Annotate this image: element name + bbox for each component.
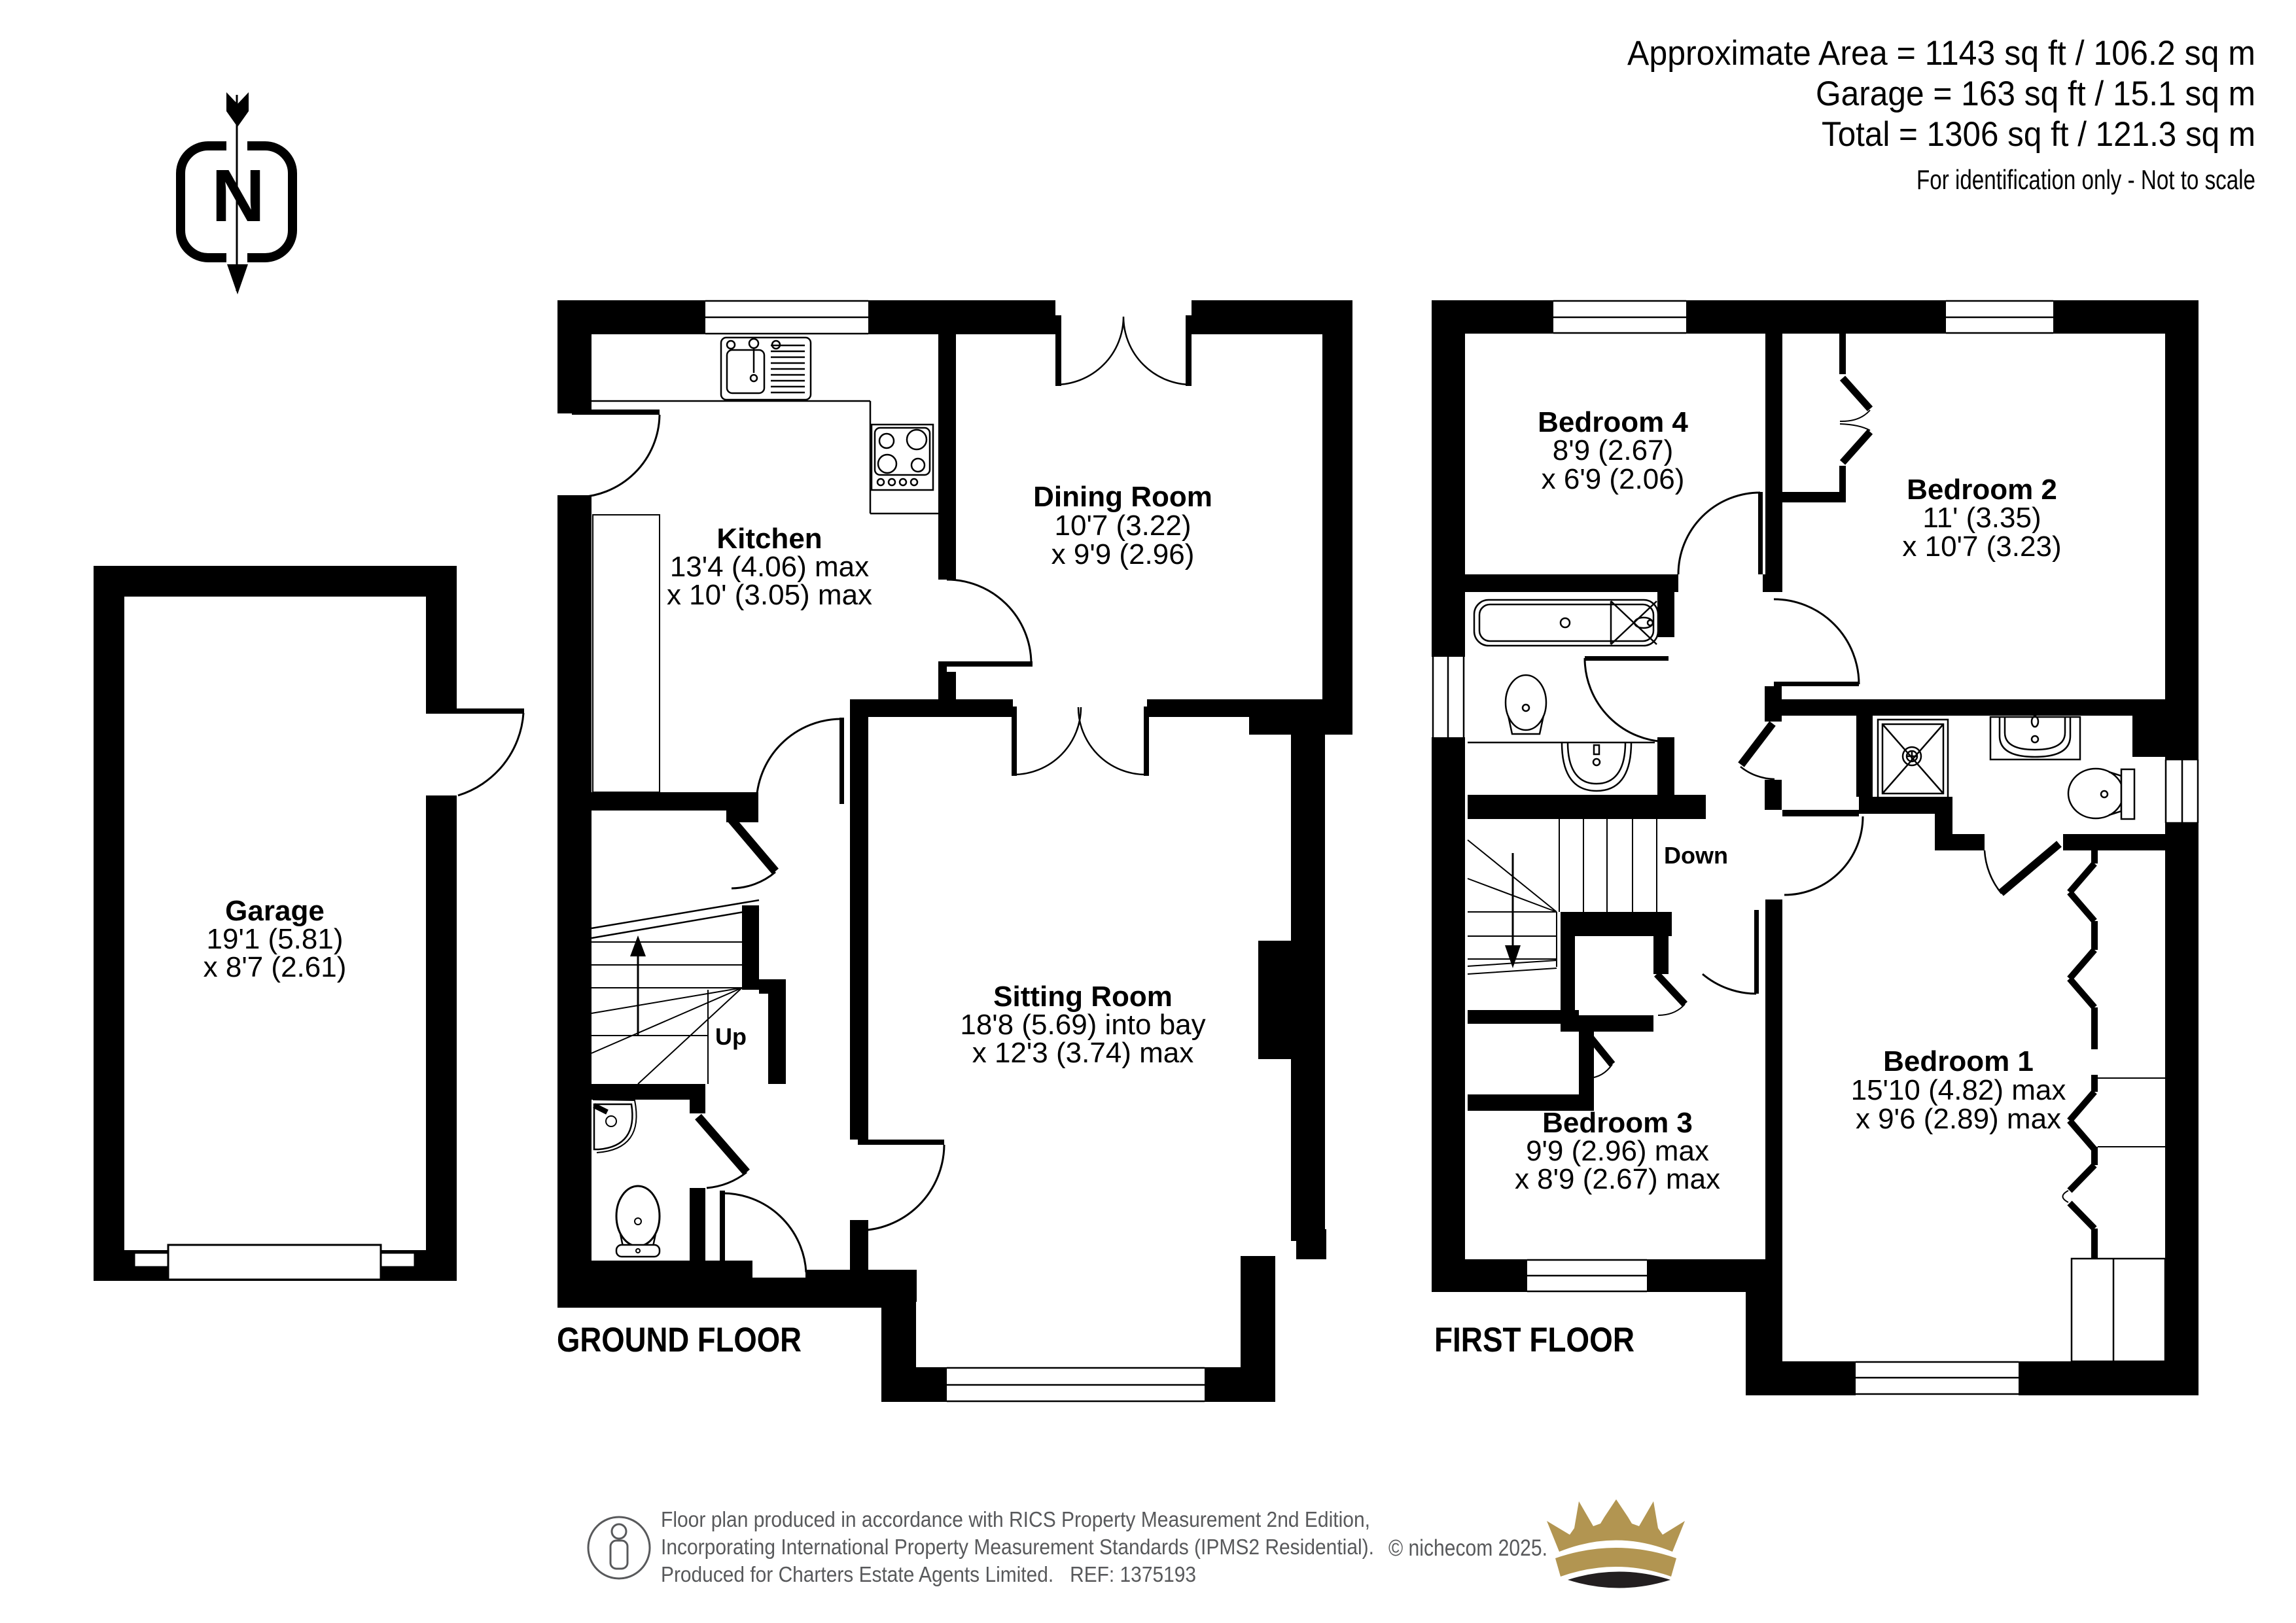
svg-text:Produced for Charters Estate A: Produced for Charters Estate Agents Limi… [661,1562,1196,1586]
svg-text:Bedroom 4: Bedroom 4 [1538,406,1688,438]
svg-text:GROUND FLOOR: GROUND FLOOR [557,1321,802,1359]
svg-text:© nichecom 2025.: © nichecom 2025. [1388,1535,1547,1561]
svg-text:Floor plan produced in accorda: Floor plan produced in accordance with R… [661,1507,1370,1531]
svg-text:x 9'9 (2.96): x 9'9 (2.96) [1051,538,1195,570]
svg-text:Down: Down [1664,842,1728,869]
svg-text:Approximate Area = 1143 sq ft: Approximate Area = 1143 sq ft / 106.2 sq… [1627,34,2255,73]
svg-text:11' (3.35): 11' (3.35) [1922,502,2041,534]
svg-text:x 12'3 (3.74) max: x 12'3 (3.74) max [972,1037,1194,1069]
svg-text:FIRST FLOOR: FIRST FLOOR [1434,1321,1634,1359]
svg-text:For identification only - Not: For identification only - Not to scale [1916,164,2255,195]
svg-text:15'10 (4.82) max: 15'10 (4.82) max [1851,1074,2066,1106]
svg-text:Dining Room: Dining Room [1033,481,1212,513]
svg-text:Up: Up [715,1023,747,1050]
svg-text:Total = 1306 sq ft / 121.3 sq: Total = 1306 sq ft / 121.3 sq m [1822,115,2255,154]
svg-text:x 8'9 (2.67) max: x 8'9 (2.67) max [1515,1163,1720,1195]
svg-text:Bedroom 1: Bedroom 1 [1883,1045,2034,1077]
svg-text:Incorporating International Pr: Incorporating International Property Mea… [661,1535,1374,1559]
svg-text:13'4 (4.06) max: 13'4 (4.06) max [670,551,869,583]
svg-text:10'7 (3.22): 10'7 (3.22) [1055,510,1192,542]
svg-text:N: N [211,154,265,237]
svg-text:Kitchen: Kitchen [716,523,822,555]
svg-text:Garage = 163 sq ft / 15.1 sq m: Garage = 163 sq ft / 15.1 sq m [1816,75,2255,113]
svg-text:18'8 (5.69) into bay: 18'8 (5.69) into bay [960,1009,1205,1041]
svg-text:8'9 (2.67): 8'9 (2.67) [1553,434,1674,466]
svg-text:Bedroom 2: Bedroom 2 [1907,474,2057,506]
svg-text:9'9 (2.96) max: 9'9 (2.96) max [1526,1135,1709,1167]
svg-text:19'1 (5.81): 19'1 (5.81) [207,923,344,955]
svg-text:x 8'7 (2.61): x 8'7 (2.61) [203,951,347,983]
svg-text:x 10'7 (3.23): x 10'7 (3.23) [1902,531,2061,563]
svg-text:x 10' (3.05) max: x 10' (3.05) max [667,579,872,611]
svg-text:Bedroom 3: Bedroom 3 [1542,1107,1693,1139]
svg-text:x 9'6 (2.89) max: x 9'6 (2.89) max [1856,1103,2061,1135]
svg-text:x 6'9 (2.06): x 6'9 (2.06) [1542,463,1685,495]
svg-text:Garage: Garage [225,895,325,927]
svg-text:Sitting Room: Sitting Room [993,981,1173,1013]
